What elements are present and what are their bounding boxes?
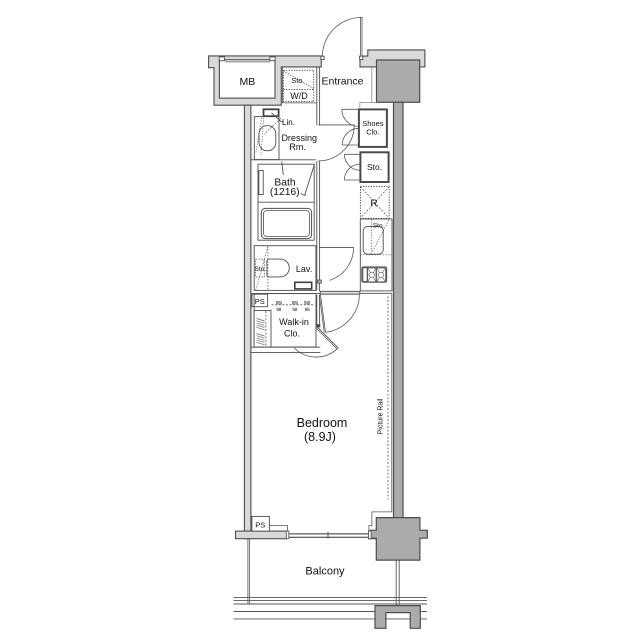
svg-text:Sto.: Sto.	[373, 222, 385, 229]
svg-text:Bedroom: Bedroom	[297, 416, 348, 430]
svg-text:Walk-in: Walk-in	[279, 317, 309, 327]
svg-text:PS: PS	[255, 520, 265, 529]
svg-text:Balcony: Balcony	[305, 566, 345, 578]
svg-text:(8.9J): (8.9J)	[304, 430, 336, 444]
svg-text:Sto.: Sto.	[291, 76, 304, 85]
svg-text:Clo.: Clo.	[284, 329, 300, 339]
svg-text:(1216): (1216)	[270, 187, 300, 198]
svg-text:Sto.: Sto.	[367, 162, 382, 172]
svg-text:Clo.: Clo.	[366, 128, 379, 137]
svg-text:Lin.: Lin.	[282, 118, 295, 127]
svg-text:MB: MB	[240, 76, 256, 88]
svg-text:Sto.: Sto.	[255, 266, 267, 273]
svg-text:Rm.: Rm.	[289, 142, 306, 152]
svg-text:W/D: W/D	[290, 91, 308, 101]
svg-text:Entrance: Entrance	[321, 76, 363, 88]
svg-text:Picture Rail: Picture Rail	[377, 398, 384, 434]
svg-text:Lav.: Lav.	[296, 264, 312, 274]
svg-text:R: R	[370, 199, 377, 210]
svg-text:PS: PS	[255, 297, 265, 306]
